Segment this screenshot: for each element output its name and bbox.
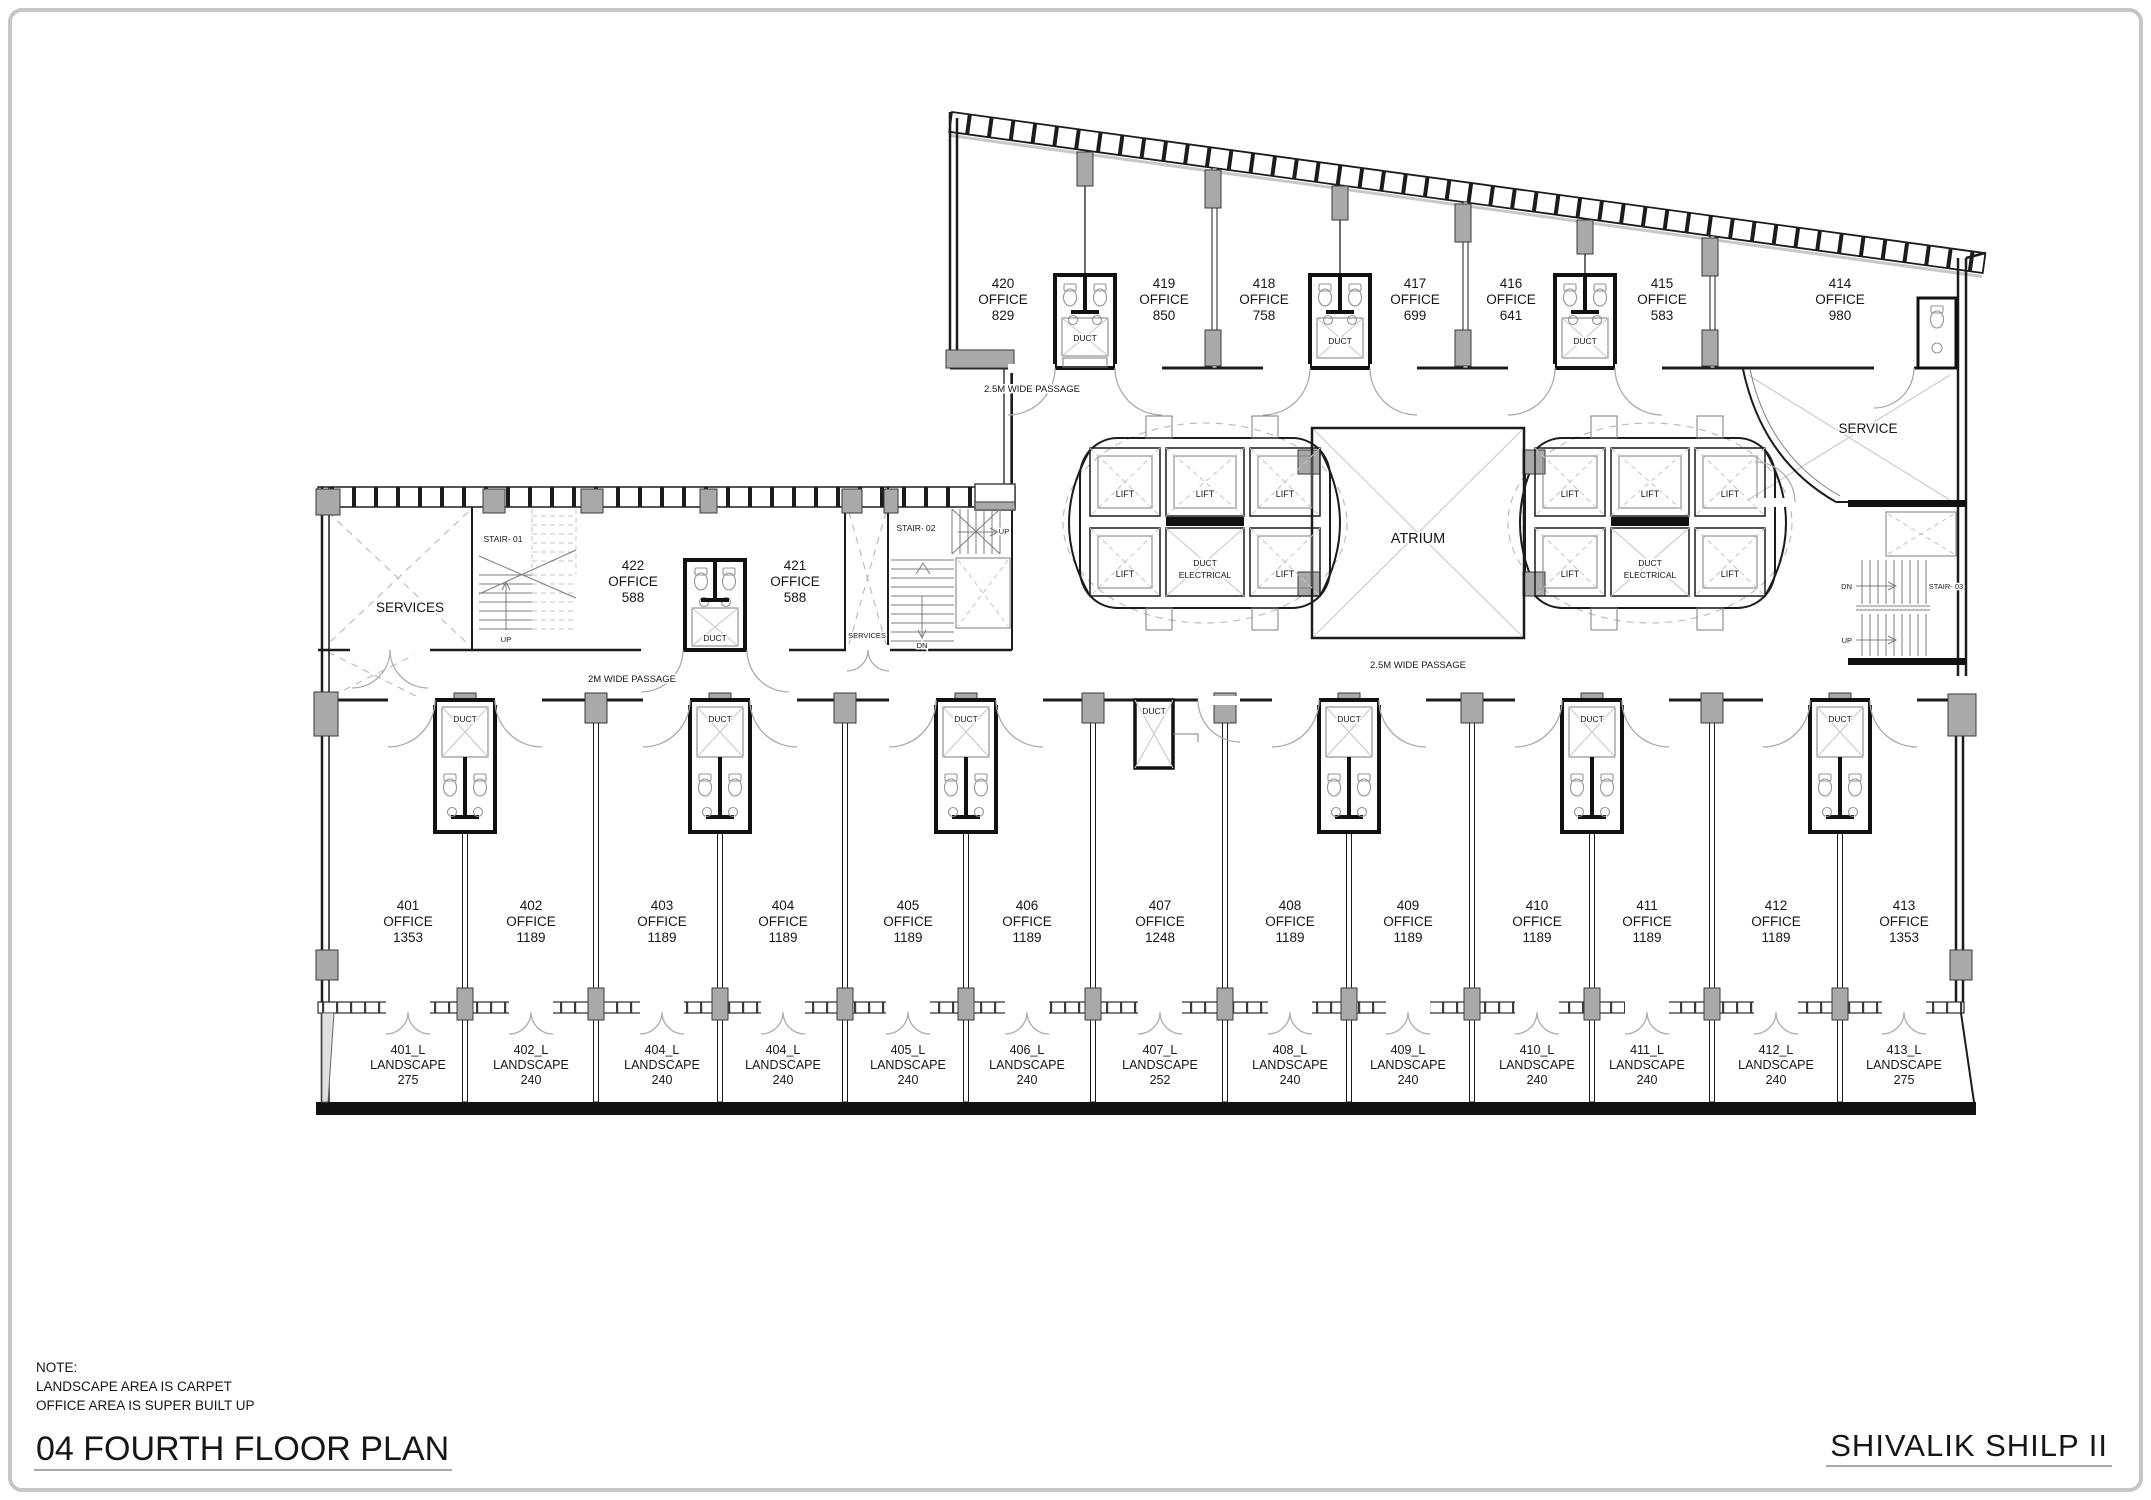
wing-top-wall — [318, 487, 1015, 507]
svg-text:407: 407 — [1149, 898, 1172, 913]
services-narrow-label: SERVICES — [848, 631, 886, 640]
note-heading: NOTE: — [36, 1360, 77, 1375]
stair-02-up: UP — [999, 527, 1009, 536]
svg-text:LANDSCAPE: LANDSCAPE — [1252, 1058, 1328, 1072]
svg-text:420: 420 — [992, 276, 1015, 291]
svg-text:OFFICE: OFFICE — [1239, 292, 1289, 307]
svg-text:411: 411 — [1636, 898, 1658, 913]
svg-text:OFFICE: OFFICE — [1622, 914, 1672, 929]
svg-text:758: 758 — [1253, 308, 1276, 323]
svg-text:407_L: 407_L — [1143, 1043, 1178, 1057]
exterior-bottom-wall — [316, 1102, 1976, 1115]
svg-text:LANDSCAPE: LANDSCAPE — [1499, 1058, 1575, 1072]
svg-text:1353: 1353 — [1889, 930, 1919, 945]
svg-text:401: 401 — [397, 898, 420, 913]
svg-text:LIFT: LIFT — [1561, 489, 1580, 499]
svg-text:DUCT: DUCT — [1828, 714, 1852, 724]
svg-text:699: 699 — [1404, 308, 1427, 323]
svg-text:408_L: 408_L — [1273, 1043, 1308, 1057]
svg-text:402_L: 402_L — [514, 1043, 549, 1057]
svg-text:1353: 1353 — [393, 930, 423, 945]
svg-text:LANDSCAPE: LANDSCAPE — [1738, 1058, 1814, 1072]
svg-text:252: 252 — [1150, 1073, 1171, 1087]
mid-wc-duct-pod: DUCT — [685, 560, 745, 650]
svg-text:403: 403 — [651, 898, 674, 913]
svg-text:OFFICE: OFFICE — [1135, 914, 1185, 929]
svg-text:413: 413 — [1893, 898, 1916, 913]
svg-text:411_L: 411_L — [1630, 1043, 1664, 1057]
svg-text:829: 829 — [992, 308, 1015, 323]
svg-text:1189: 1189 — [516, 930, 545, 945]
wc-duct-pod: DUCT — [1555, 275, 1615, 368]
svg-text:LANDSCAPE: LANDSCAPE — [493, 1058, 569, 1072]
svg-text:410_L: 410_L — [1520, 1043, 1555, 1057]
svg-text:240: 240 — [652, 1073, 673, 1087]
svg-text:LANDSCAPE: LANDSCAPE — [989, 1058, 1065, 1072]
svg-text:850: 850 — [1153, 308, 1176, 323]
svg-text:405_L: 405_L — [891, 1043, 926, 1057]
svg-text:408: 408 — [1279, 898, 1302, 913]
wc-414 — [1918, 298, 1956, 368]
svg-text:980: 980 — [1829, 308, 1852, 323]
floor-plan-sheet: ATRIUM LIFT LIFT LIFT LIFT — [0, 0, 2151, 1500]
svg-text:414: 414 — [1829, 276, 1852, 291]
stair-02-label: STAIR- 02 — [896, 523, 935, 533]
svg-text:LIFT: LIFT — [1276, 569, 1295, 579]
plan-title: 04 FOURTH FLOOR PLAN — [36, 1430, 449, 1468]
svg-text:404_L: 404_L — [766, 1043, 801, 1057]
svg-text:DUCT: DUCT — [1142, 706, 1166, 716]
stair-03-label: STAIR- 03 — [1929, 582, 1963, 591]
svg-text:419: 419 — [1153, 276, 1176, 291]
svg-text:1248: 1248 — [1145, 930, 1175, 945]
svg-text:415: 415 — [1651, 276, 1674, 291]
svg-text:1189: 1189 — [1393, 930, 1422, 945]
svg-text:OFFICE: OFFICE — [1637, 292, 1687, 307]
wc-duct-pod: DUCT — [1810, 700, 1870, 832]
svg-text:1189: 1189 — [893, 930, 922, 945]
svg-text:DUCT: DUCT — [1328, 336, 1352, 346]
svg-text:1189: 1189 — [1632, 930, 1661, 945]
svg-text:OFFICE: OFFICE — [770, 574, 820, 589]
svg-text:240: 240 — [1280, 1073, 1301, 1087]
svg-text:404: 404 — [772, 898, 795, 913]
svg-text:417: 417 — [1404, 276, 1427, 291]
svg-text:OFFICE: OFFICE — [1002, 914, 1052, 929]
svg-text:DUCT: DUCT — [1193, 558, 1217, 568]
svg-text:413_L: 413_L — [1887, 1043, 1922, 1057]
svg-text:ELECTRICAL: ELECTRICAL — [1179, 570, 1232, 580]
svg-text:DUCT: DUCT — [1337, 714, 1361, 724]
stair-01-label: STAIR- 01 — [483, 534, 522, 544]
svg-text:DUCT: DUCT — [954, 714, 978, 724]
wc-duct-pod: DUCT — [1562, 700, 1622, 832]
svg-text:OFFICE: OFFICE — [1815, 292, 1865, 307]
svg-text:410: 410 — [1526, 898, 1549, 913]
svg-text:LANDSCAPE: LANDSCAPE — [370, 1058, 446, 1072]
svg-text:LIFT: LIFT — [1116, 489, 1135, 499]
svg-text:1189: 1189 — [1275, 930, 1304, 945]
wc-duct-pod: DUCT — [1055, 275, 1115, 368]
svg-text:412_L: 412_L — [1759, 1043, 1794, 1057]
svg-text:275: 275 — [398, 1073, 419, 1087]
svg-text:OFFICE: OFFICE — [608, 574, 658, 589]
svg-text:240: 240 — [1017, 1073, 1038, 1087]
svg-text:LIFT: LIFT — [1721, 569, 1740, 579]
svg-text:LIFT: LIFT — [1196, 489, 1215, 499]
svg-text:402: 402 — [520, 898, 543, 913]
svg-text:404_L: 404_L — [645, 1043, 680, 1057]
svg-text:OFFICE: OFFICE — [883, 914, 933, 929]
svg-text:409: 409 — [1397, 898, 1420, 913]
svg-text:DUCT: DUCT — [1580, 714, 1604, 724]
svg-text:OFFICE: OFFICE — [1265, 914, 1315, 929]
svg-text:240: 240 — [1766, 1073, 1787, 1087]
svg-text:OFFICE: OFFICE — [1390, 292, 1440, 307]
svg-text:1189: 1189 — [1012, 930, 1041, 945]
svg-text:240: 240 — [1398, 1073, 1419, 1087]
svg-text:401_L: 401_L — [391, 1043, 426, 1057]
svg-text:LANDSCAPE: LANDSCAPE — [745, 1058, 821, 1072]
service-room-label: SERVICE — [1838, 421, 1897, 436]
svg-text:641: 641 — [1500, 308, 1523, 323]
svg-text:OFFICE: OFFICE — [383, 914, 433, 929]
svg-text:DUCT: DUCT — [1573, 336, 1597, 346]
svg-text:240: 240 — [1527, 1073, 1548, 1087]
svg-text:422: 422 — [622, 558, 645, 573]
svg-text:421: 421 — [784, 558, 807, 573]
svg-text:588: 588 — [622, 590, 645, 605]
svg-text:LANDSCAPE: LANDSCAPE — [1866, 1058, 1942, 1072]
services-room-label: SERVICES — [376, 600, 444, 615]
svg-text:240: 240 — [521, 1073, 542, 1087]
svg-text:409_L: 409_L — [1391, 1043, 1426, 1057]
svg-text:405: 405 — [897, 898, 920, 913]
svg-text:1189: 1189 — [1522, 930, 1551, 945]
svg-text:DUCT: DUCT — [453, 714, 477, 724]
wc-duct-pod: DUCT — [1310, 275, 1370, 368]
stair-03-up: UP — [1842, 636, 1852, 645]
svg-text:LANDSCAPE: LANDSCAPE — [624, 1058, 700, 1072]
svg-text:412: 412 — [1765, 898, 1788, 913]
passage-25-top: 2.5M WIDE PASSAGE — [984, 384, 1080, 395]
svg-text:LIFT: LIFT — [1561, 569, 1580, 579]
svg-text:LIFT: LIFT — [1721, 489, 1740, 499]
svg-text:LANDSCAPE: LANDSCAPE — [870, 1058, 946, 1072]
svg-text:OFFICE: OFFICE — [1751, 914, 1801, 929]
svg-text:OFFICE: OFFICE — [506, 914, 556, 929]
svg-text:DUCT: DUCT — [703, 633, 727, 643]
passage-25-mid: 2.5M WIDE PASSAGE — [1370, 660, 1466, 671]
svg-text:DUCT: DUCT — [1073, 333, 1097, 343]
atrium-label: ATRIUM — [1391, 531, 1446, 547]
svg-text:240: 240 — [1637, 1073, 1658, 1087]
svg-text:OFFICE: OFFICE — [1486, 292, 1536, 307]
svg-text:DUCT: DUCT — [1638, 558, 1662, 568]
stair-02-dn: DN — [917, 641, 928, 650]
svg-text:ELECTRICAL: ELECTRICAL — [1624, 570, 1677, 580]
svg-text:1189: 1189 — [1761, 930, 1790, 945]
stair-03-dn: DN — [1841, 582, 1852, 591]
wc-duct-pod: DUCT — [690, 700, 750, 832]
svg-text:LANDSCAPE: LANDSCAPE — [1609, 1058, 1685, 1072]
wc-duct-pod: DUCT — [435, 700, 495, 832]
svg-text:275: 275 — [1894, 1073, 1915, 1087]
wc-duct-pod: DUCT — [1319, 700, 1379, 832]
note-line-2: OFFICE AREA IS SUPER BUILT UP — [36, 1398, 255, 1413]
svg-text:418: 418 — [1253, 276, 1276, 291]
svg-text:1189: 1189 — [647, 930, 676, 945]
svg-text:LANDSCAPE: LANDSCAPE — [1370, 1058, 1446, 1072]
svg-text:OFFICE: OFFICE — [1512, 914, 1562, 929]
svg-text:LIFT: LIFT — [1276, 489, 1295, 499]
svg-text:LIFT: LIFT — [1116, 569, 1135, 579]
note-line-1: LANDSCAPE AREA IS CARPET — [36, 1379, 232, 1394]
wc-duct-pod: DUCT — [936, 700, 996, 832]
svg-text:588: 588 — [784, 590, 807, 605]
stair-01-up: UP — [501, 635, 511, 644]
svg-text:OFFICE: OFFICE — [978, 292, 1028, 307]
svg-text:OFFICE: OFFICE — [1139, 292, 1189, 307]
floor-plan-drawing: ATRIUM LIFT LIFT LIFT LIFT — [0, 0, 2151, 1500]
svg-text:1189: 1189 — [768, 930, 797, 945]
svg-text:OFFICE: OFFICE — [758, 914, 808, 929]
passage-2m: 2M WIDE PASSAGE — [588, 674, 676, 685]
project-title: SHIVALIK SHILP II — [1830, 1428, 2108, 1463]
svg-text:OFFICE: OFFICE — [637, 914, 687, 929]
svg-text:DUCT: DUCT — [708, 714, 732, 724]
svg-text:OFFICE: OFFICE — [1383, 914, 1433, 929]
svg-text:416: 416 — [1500, 276, 1523, 291]
svg-text:406: 406 — [1016, 898, 1039, 913]
svg-text:LANDSCAPE: LANDSCAPE — [1122, 1058, 1198, 1072]
svg-text:406_L: 406_L — [1010, 1043, 1045, 1057]
svg-text:LIFT: LIFT — [1641, 489, 1660, 499]
svg-text:240: 240 — [773, 1073, 794, 1087]
svg-text:240: 240 — [898, 1073, 919, 1087]
svg-text:583: 583 — [1651, 308, 1674, 323]
svg-text:OFFICE: OFFICE — [1879, 914, 1929, 929]
